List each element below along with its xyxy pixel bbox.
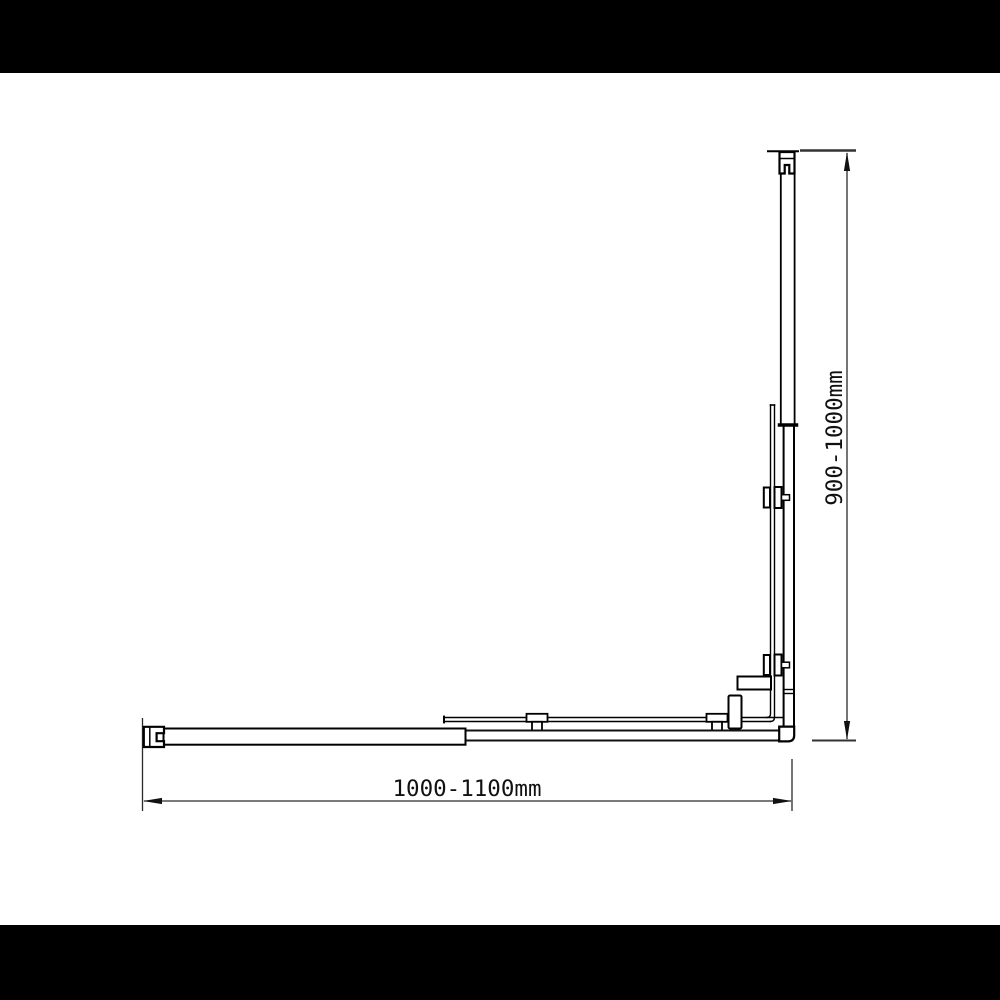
glass-clamp-bottom-mid <box>527 714 548 731</box>
clamp-connector <box>782 495 790 501</box>
drawing-canvas: 900-1000mm 1000-1100mm <box>0 0 1000 1000</box>
technical-drawing: 900-1000mm 1000-1100mm <box>0 0 1000 1000</box>
width-dim-arrow-left-icon <box>143 798 162 804</box>
width-dimension-label: 1000-1100mm <box>392 776 541 802</box>
glass-clamp-upper <box>764 487 790 508</box>
height-dimension-label: 900-1000mm <box>822 370 848 505</box>
bottom-rail-left-section <box>164 729 466 745</box>
corner-foot-block <box>779 727 794 742</box>
height-dim-arrow-down-icon <box>844 721 850 740</box>
width-dim-arrow-right-icon <box>773 798 792 804</box>
top-wall-bracket <box>768 151 798 173</box>
clamp-body <box>527 714 548 722</box>
clamp-connector <box>782 662 790 668</box>
corner-post-profile <box>784 427 794 728</box>
height-dim-arrow-up-icon <box>844 152 850 171</box>
frame-assembly <box>144 151 798 747</box>
clamp-body <box>775 655 782 676</box>
glass-clamp-bottom-right <box>707 714 728 731</box>
clamp-outer-pad <box>764 655 770 675</box>
support-bracket-vertical <box>729 696 742 729</box>
top-bracket-profile <box>780 152 795 174</box>
vertical-wall-profile-bar <box>780 174 797 426</box>
bottom-rail-right-section <box>466 731 780 741</box>
clamp-body <box>775 487 782 508</box>
glass-clamp-lower <box>764 655 790 676</box>
height-dimension: 900-1000mm <box>800 151 856 741</box>
left-bracket-profile <box>144 727 164 747</box>
glass-support-bar <box>444 405 784 722</box>
clamp-outer-pad <box>764 488 770 508</box>
clamp-body <box>707 714 728 722</box>
support-bracket-horizontal <box>738 677 772 690</box>
left-wall-bracket <box>144 727 164 747</box>
